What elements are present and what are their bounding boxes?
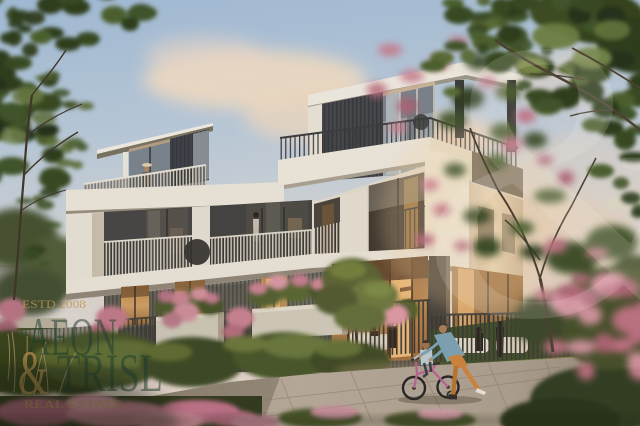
svg-text:&: & [420,0,640,402]
